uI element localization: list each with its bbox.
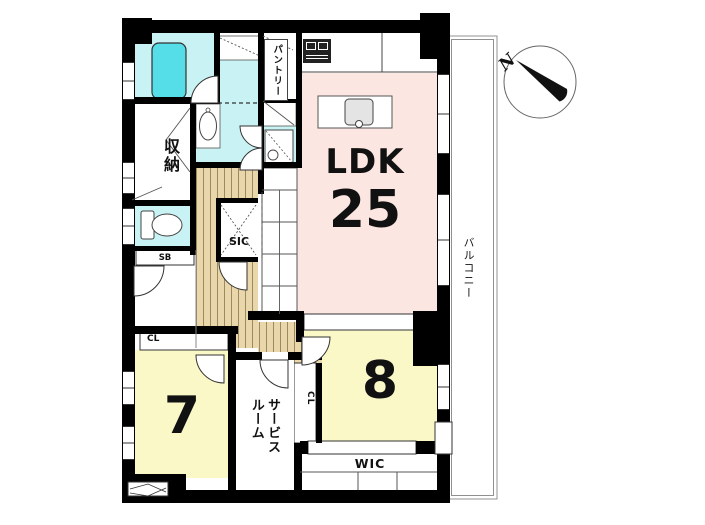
floor-plan-drawing <box>0 0 705 525</box>
sic-floor <box>221 203 258 257</box>
kitchen-faucet-icon <box>356 121 363 128</box>
sliding-door-8-wic <box>308 441 416 454</box>
washing-machine-door-icon <box>268 150 278 160</box>
floor-plan: パントリー 収納 SIC SB LDK 25 8 7 サービスルーム WIC C… <box>0 0 705 525</box>
storage-label: 収納 <box>153 138 179 188</box>
closet-8-label: CL <box>298 391 314 421</box>
bathtub-icon <box>152 43 186 99</box>
storage-closet-mark <box>132 187 162 200</box>
balcony-label: バルコニー <box>456 237 474 317</box>
wic-label: WIC <box>330 457 410 471</box>
shoe-box-label: SB <box>136 251 194 265</box>
sliding-door-ldk-8 <box>304 314 414 330</box>
washbasin-faucet-icon <box>206 108 210 112</box>
service-room-label: サービスルーム <box>238 398 280 458</box>
pantry-label: パントリー <box>264 39 288 101</box>
ldk-size-label: 25 <box>315 182 415 239</box>
toilet-bowl-icon <box>152 214 182 236</box>
ldk-label: LDK <box>315 144 415 181</box>
closet-7-label: CL <box>147 335 177 345</box>
washbasin-icon <box>200 112 217 140</box>
bedroom-7-size-label: 7 <box>142 388 222 445</box>
balcony-door <box>435 422 452 454</box>
entrance-hatch <box>128 482 168 496</box>
bedroom-8-size-label: 8 <box>340 353 420 410</box>
sic-label: SIC <box>219 236 259 248</box>
